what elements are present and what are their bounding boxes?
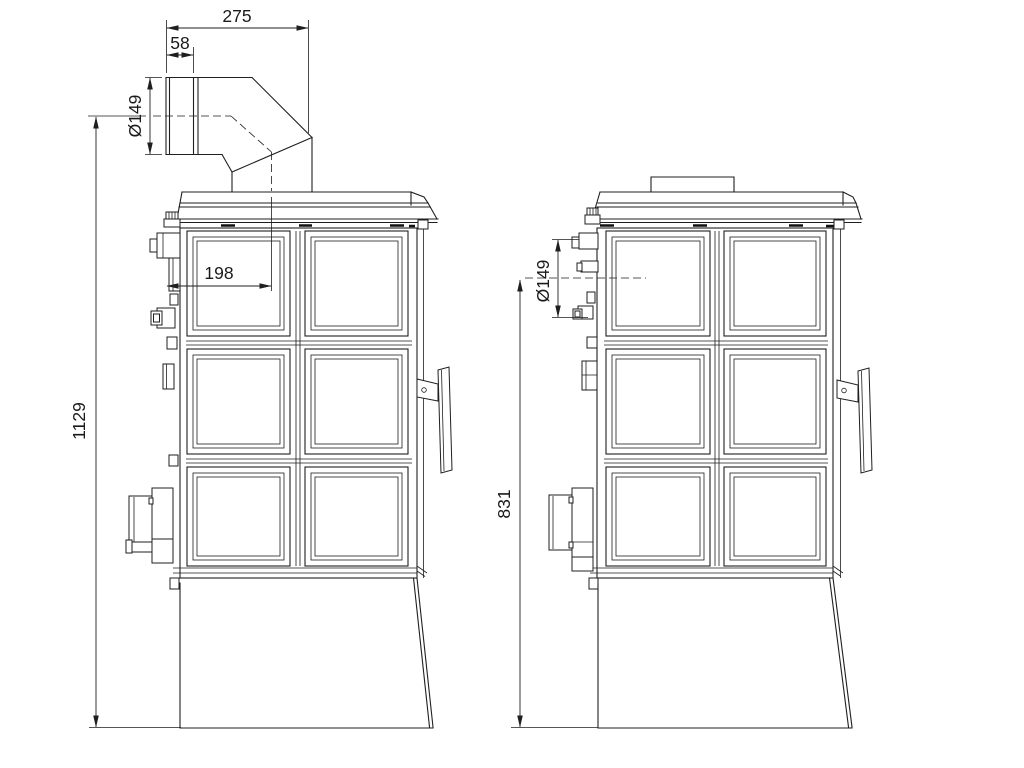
stove-dimension-drawing: 275 58 Ø149 198 1129 [0,0,1024,768]
door-panel [187,467,408,566]
hinge-hardware [150,212,180,466]
dimension-overall-height: 1129 [69,116,181,728]
dimension-label: 198 [204,263,233,283]
base-pedestal [598,578,852,728]
base-pedestal [180,578,433,728]
hinge-block [579,233,598,249]
panel-grid [590,220,844,578]
rear-panel [606,231,826,336]
bottom-fitting [126,539,179,589]
flue-elbow-pipe [153,78,312,193]
dimension-label: 831 [494,489,514,518]
dimension-flue-offset: 198 [167,197,272,291]
stile-foot [589,578,598,589]
door-panel [187,349,408,454]
right-view: Ø149 831 [494,177,872,728]
rear-panel [606,467,826,566]
pipe-center-line [153,116,272,191]
top-cap [590,177,862,226]
dimension-pipe-depth: 275 [167,6,309,133]
dimension-label: 275 [222,6,251,26]
dimension-label: 1129 [69,402,89,440]
cap-gap-shadow [221,226,415,227]
technical-drawing-page: 275 58 Ø149 198 1129 [0,0,1024,768]
dimension-label: Ø149 [533,260,553,303]
hinge-block [157,233,180,258]
rear-panel [606,349,826,454]
top-cap [176,192,438,226]
hinge-bolt [150,239,157,252]
cap-side-bracket [834,220,844,229]
hinge-hardware [572,208,600,390]
door-handle [837,368,872,473]
dimension-pipe-socket: 58 [167,33,194,73]
flue-collar [651,177,734,192]
cap-side-bracket [418,220,428,229]
door-panel [187,231,408,336]
left-view: 275 58 Ø149 198 1129 [69,6,452,728]
door-handle [417,367,452,473]
stile-foot [170,578,179,589]
hinge-bolt [572,237,579,248]
dimension-label: 58 [170,33,189,53]
air-intake-box [549,488,593,561]
cap-gap-shadow [600,226,838,227]
